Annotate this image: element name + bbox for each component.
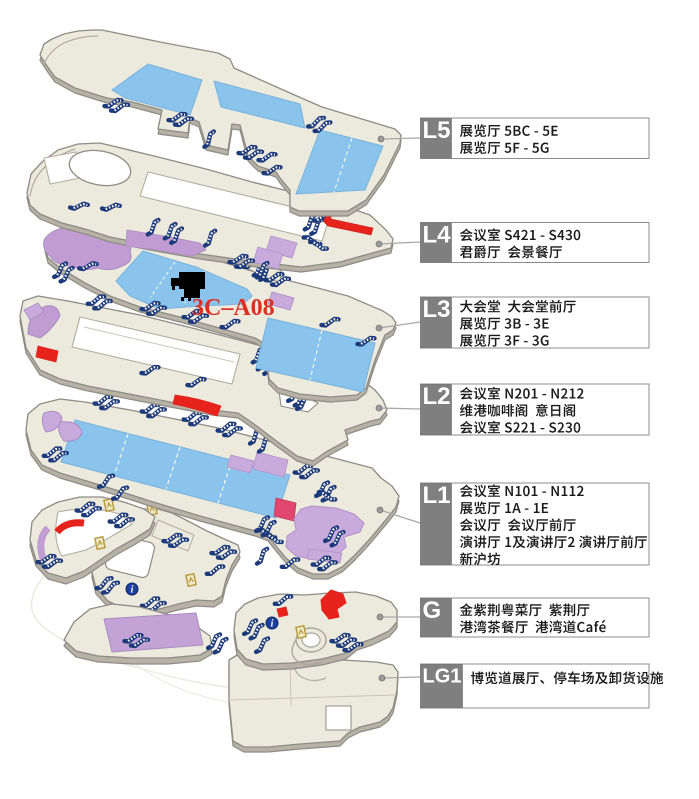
svg-text:L4: L4 [423, 222, 452, 249]
svg-text:L2: L2 [423, 383, 451, 410]
svg-text:3C–A08: 3C–A08 [192, 295, 275, 321]
svg-text:i: i [131, 585, 134, 596]
svg-text:L1: L1 [423, 482, 451, 509]
svg-text:L3: L3 [423, 296, 451, 323]
svg-text:G: G [423, 597, 442, 624]
svg-text:LG1: LG1 [423, 666, 462, 688]
svg-text:L5: L5 [423, 117, 451, 144]
svg-text:i: i [271, 619, 274, 630]
